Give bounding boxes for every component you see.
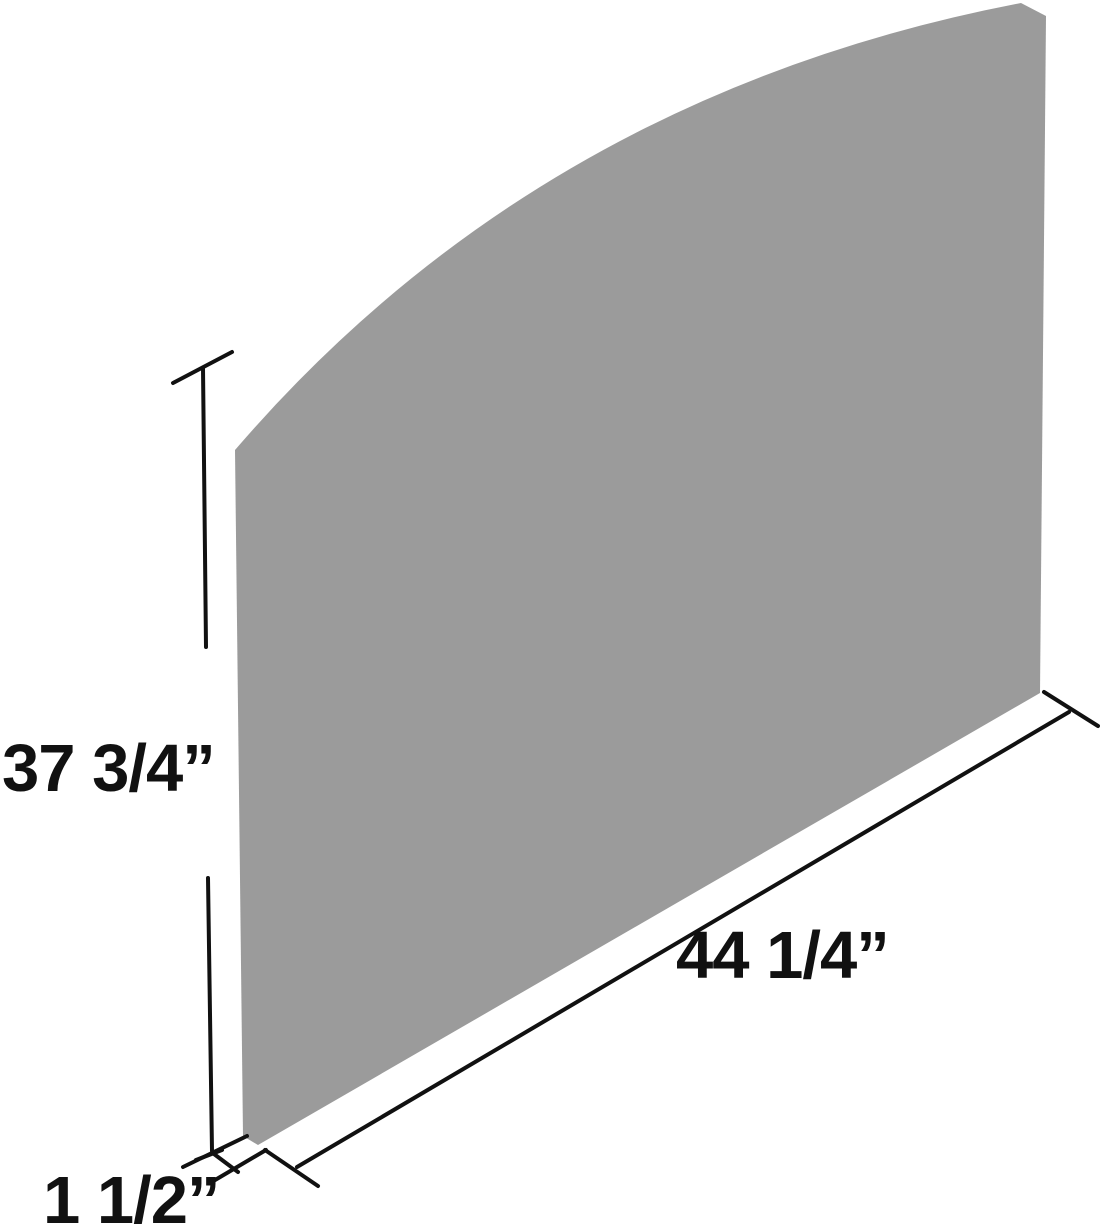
height-dim-line-lower [208, 878, 212, 1151]
depth-dimension-label: 1 1/2” [43, 1167, 220, 1224]
width-dim-left-extension [265, 1150, 318, 1186]
panel-shape [235, 3, 1046, 1145]
dimension-diagram: 37 3/4” 44 1/4” 1 1/2” [0, 0, 1100, 1224]
width-dimension-label: 44 1/4” [676, 922, 889, 989]
height-dimension-label: 37 3/4” [2, 735, 215, 802]
height-dim-line-upper [203, 368, 206, 647]
diagram-svg [0, 0, 1100, 1224]
